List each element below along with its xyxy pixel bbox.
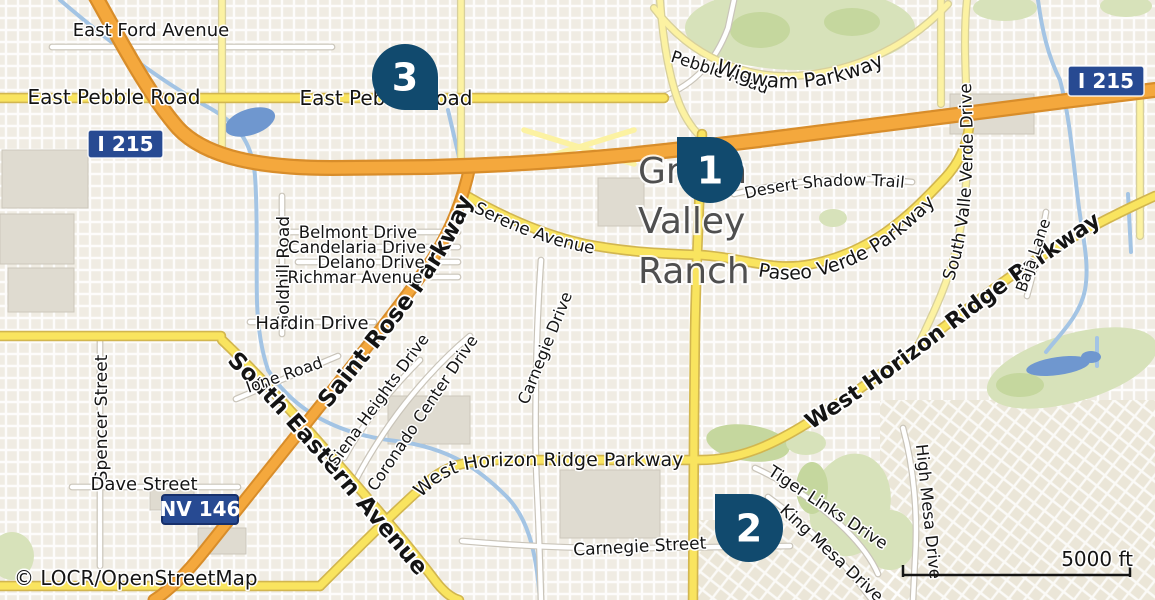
scale-label: 5000 ft — [1061, 547, 1133, 571]
map-pin-number-2: 2 — [736, 507, 762, 551]
attribution-text: © LOCR/OpenStreetMap — [14, 566, 258, 590]
shield-label: I 215 — [1078, 69, 1134, 93]
map-canvas[interactable]: I 215 I 215 NV 146 East Ford Avenue East… — [0, 0, 1155, 600]
shield-label: I 215 — [97, 132, 153, 156]
road-label-hardin: Hardin Drive — [255, 313, 368, 334]
road-label-richmar: Richmar Avenue — [287, 268, 422, 287]
map-pin-number-1: 1 — [697, 149, 723, 193]
map-viewport[interactable]: I 215 I 215 NV 146 East Ford Avenue East… — [0, 0, 1155, 600]
map-pin-number-3: 3 — [392, 56, 418, 100]
road-label-spencer: Spencer Street — [92, 354, 112, 481]
shield-label: NV 146 — [160, 497, 241, 521]
road-label-east-ford: East Ford Avenue — [73, 20, 229, 41]
route-shield-i215-east: I 215 — [1068, 66, 1144, 96]
road-label-dave: Dave Street — [90, 474, 197, 495]
road-label-east-pebble-w: East Pebble Road — [28, 85, 201, 109]
place-label-line: Ranch — [638, 251, 750, 292]
route-shield-i215-west: I 215 — [88, 130, 163, 158]
route-shield-nv146: NV 146 — [160, 495, 241, 524]
place-label-line: Valley — [638, 201, 745, 242]
